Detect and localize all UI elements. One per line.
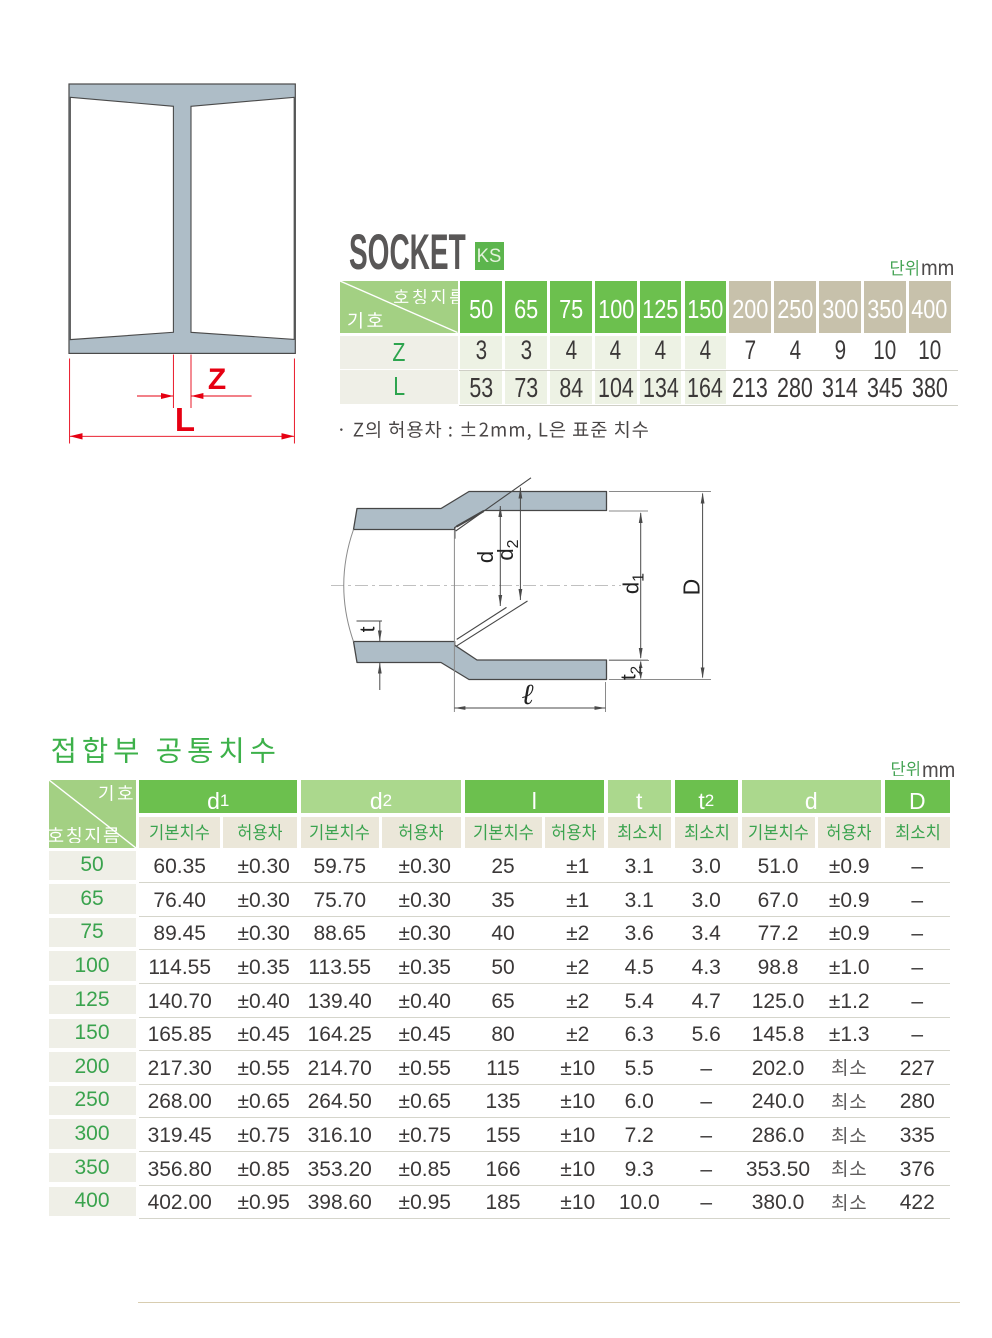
svg-text:ℓ: ℓ (521, 679, 533, 711)
svg-text:d1: d1 (619, 573, 648, 594)
svg-text:D: D (679, 579, 705, 596)
svg-text:d2: d2 (493, 539, 522, 560)
svg-text:t2: t2 (618, 666, 645, 680)
svg-text:t: t (357, 626, 380, 632)
